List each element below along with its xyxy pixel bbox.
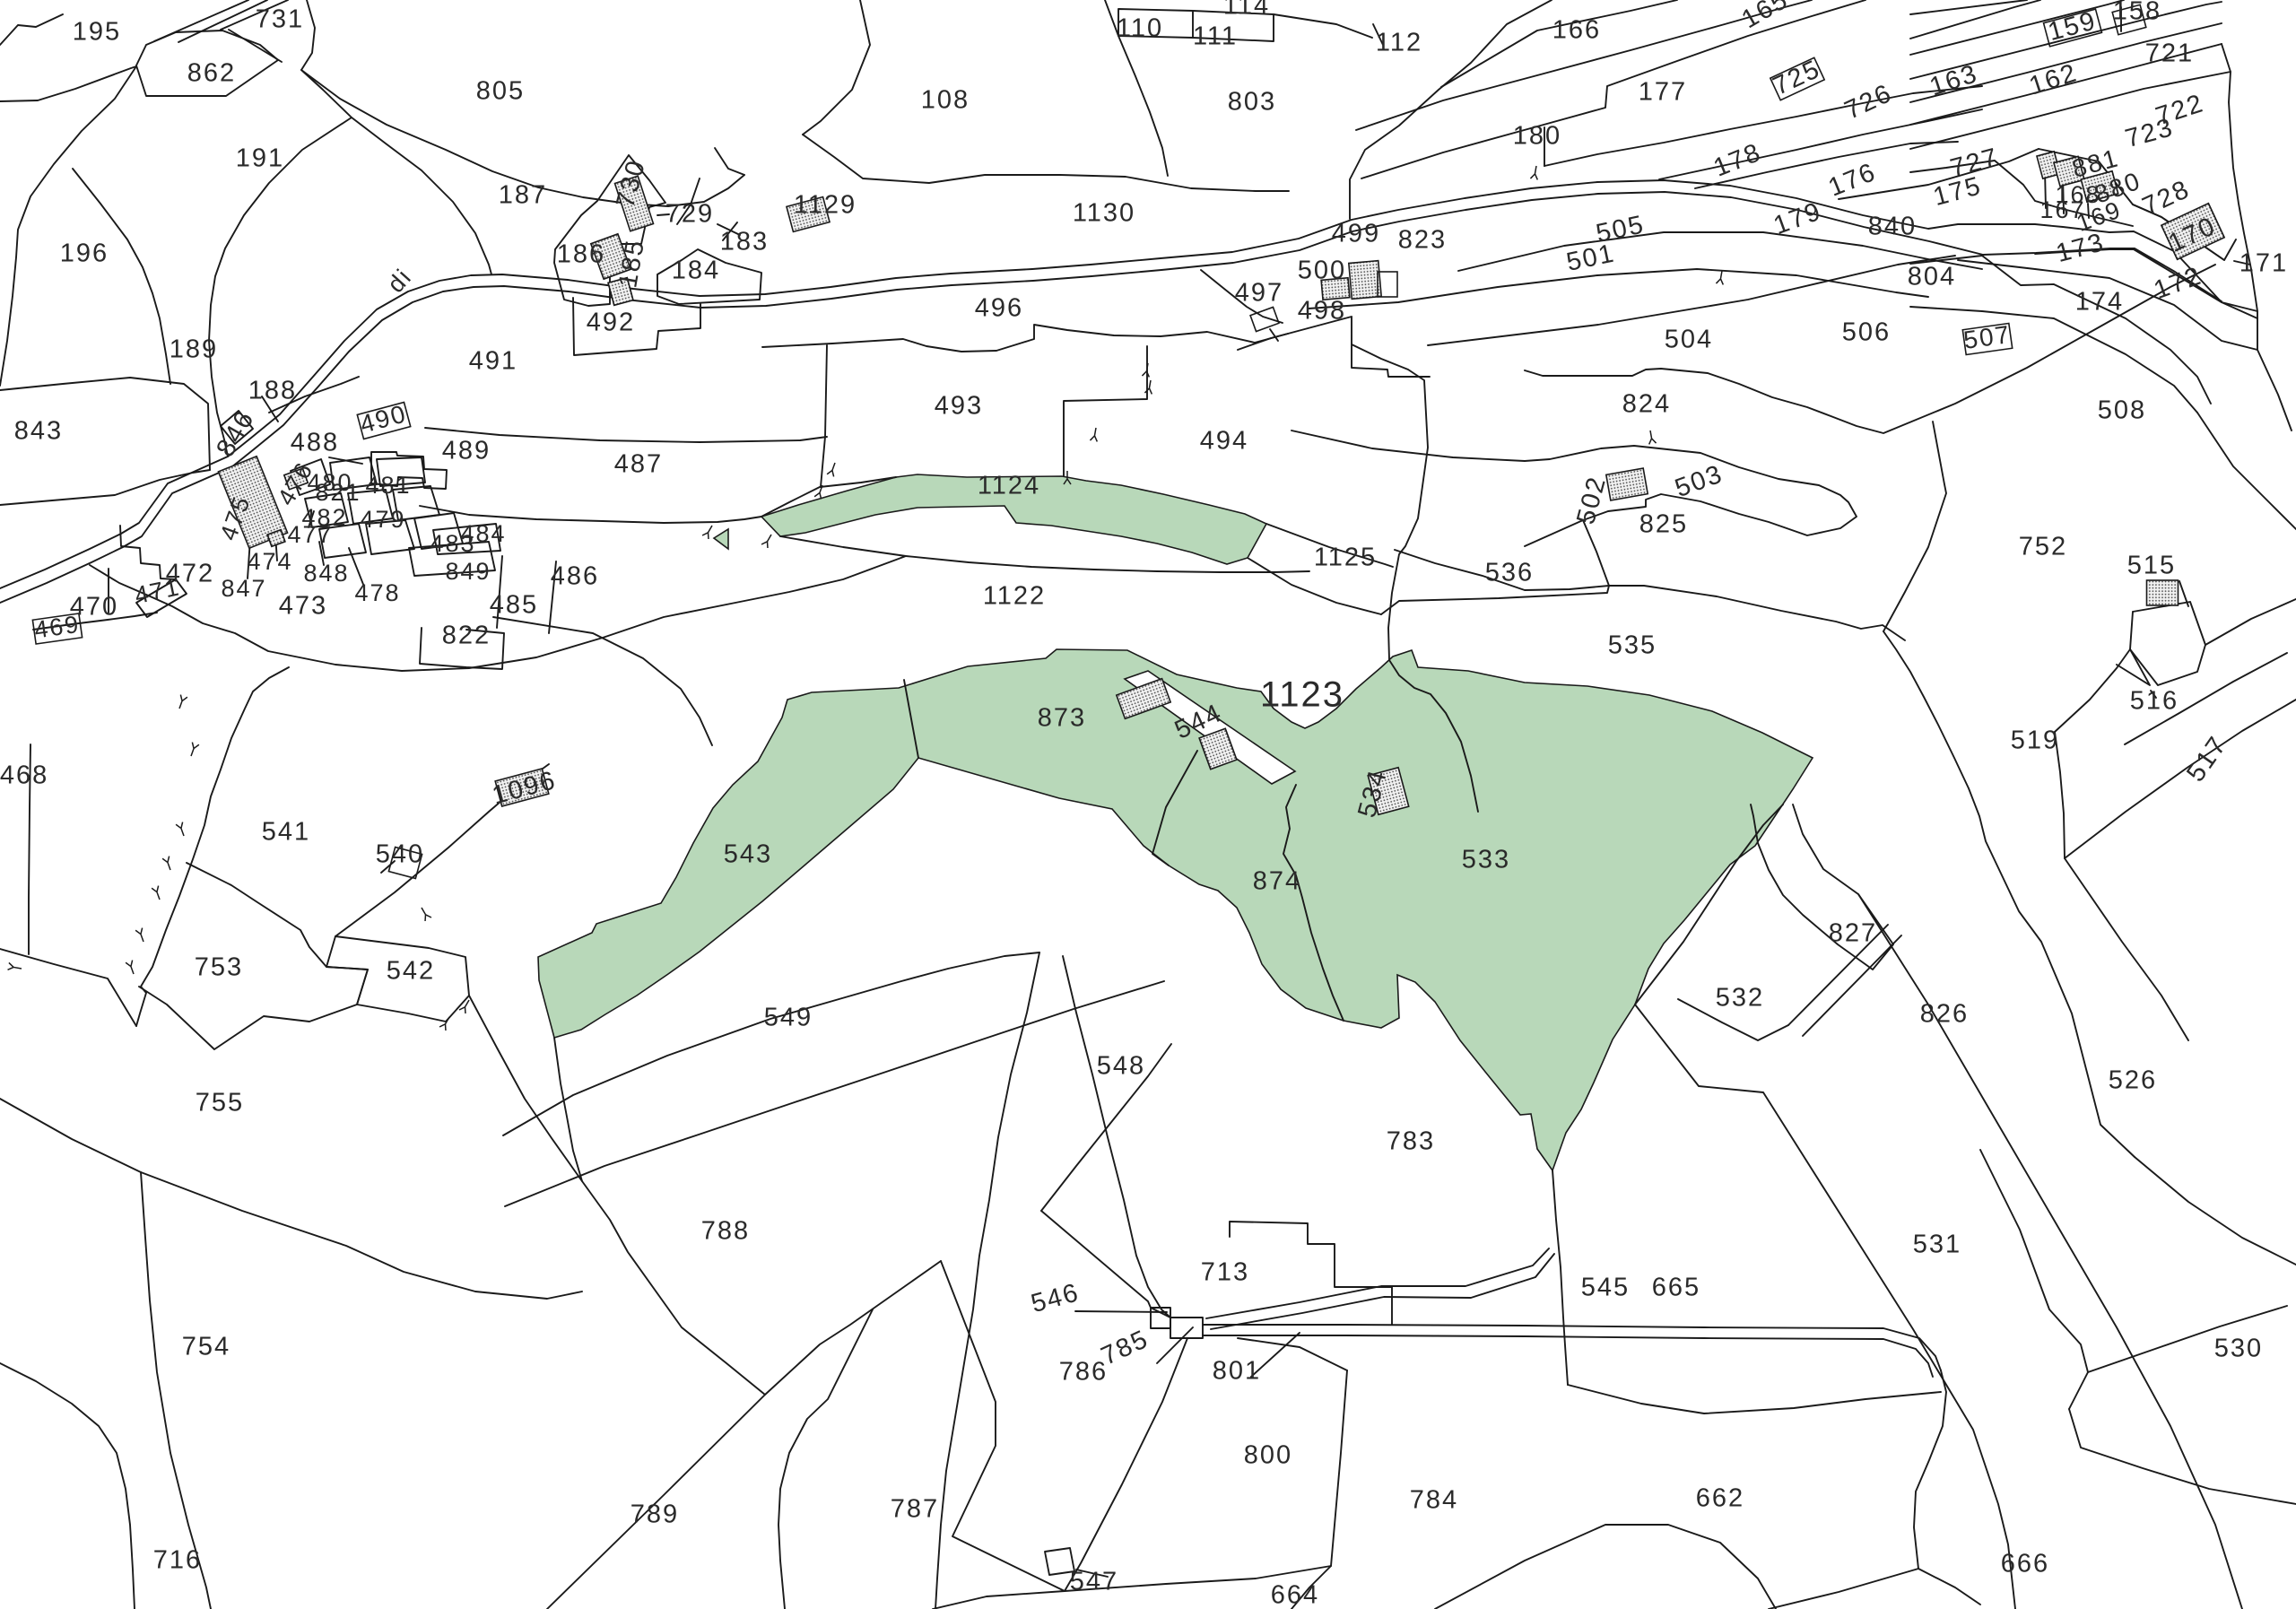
svg-text:548: 548 [1097, 1052, 1145, 1081]
svg-text:483: 483 [430, 530, 475, 557]
svg-text:479: 479 [360, 506, 405, 533]
svg-text:526: 526 [2109, 1066, 2157, 1095]
svg-text:848: 848 [303, 560, 349, 587]
svg-text:547: 547 [1070, 1568, 1118, 1596]
svg-text:488: 488 [291, 429, 339, 457]
svg-text:542: 542 [387, 957, 435, 986]
svg-text:535: 535 [1608, 631, 1657, 660]
svg-text:195: 195 [73, 18, 121, 47]
svg-text:497: 497 [1235, 279, 1283, 308]
svg-text:487: 487 [614, 450, 663, 479]
svg-text:540: 540 [376, 840, 424, 869]
svg-text:827: 827 [1829, 919, 1877, 948]
svg-text:822: 822 [442, 622, 491, 650]
svg-text:1124: 1124 [978, 472, 1040, 500]
svg-text:506: 506 [1842, 318, 1891, 347]
svg-text:713: 713 [1201, 1258, 1249, 1287]
svg-text:188: 188 [248, 377, 297, 405]
svg-text:530: 530 [2214, 1335, 2263, 1363]
svg-text:519: 519 [2011, 726, 2059, 755]
svg-text:180: 180 [1513, 122, 1561, 151]
svg-text:805: 805 [476, 77, 525, 106]
svg-text:110: 110 [1117, 14, 1163, 43]
svg-text:666: 666 [2001, 1550, 2049, 1579]
svg-text:731: 731 [256, 5, 304, 34]
svg-text:532: 532 [1716, 984, 1764, 1013]
svg-text:800: 800 [1244, 1441, 1292, 1470]
svg-text:801: 801 [1213, 1357, 1261, 1386]
svg-text:662: 662 [1696, 1484, 1744, 1513]
svg-text:531: 531 [1913, 1231, 1961, 1259]
svg-text:787: 787 [891, 1495, 939, 1524]
svg-text:826: 826 [1920, 1000, 1969, 1029]
svg-text:111: 111 [1193, 22, 1238, 51]
svg-text:516: 516 [2130, 687, 2179, 716]
svg-text:784: 784 [1410, 1486, 1458, 1515]
svg-text:873: 873 [1038, 704, 1086, 733]
svg-text:786: 786 [1059, 1358, 1108, 1387]
svg-text:1130: 1130 [1073, 199, 1135, 228]
svg-text:840: 840 [1868, 213, 1917, 241]
svg-text:664: 664 [1271, 1581, 1319, 1609]
svg-text:804: 804 [1908, 263, 1956, 291]
svg-text:486: 486 [551, 562, 599, 591]
svg-text:541: 541 [262, 818, 310, 847]
svg-text:721: 721 [2145, 39, 2194, 68]
svg-text:755: 755 [196, 1089, 244, 1118]
svg-text:843: 843 [14, 417, 63, 446]
svg-text:824: 824 [1622, 390, 1671, 419]
svg-text:494: 494 [1200, 427, 1248, 456]
svg-text:533: 533 [1462, 846, 1510, 874]
svg-text:189: 189 [170, 335, 218, 364]
svg-text:473: 473 [279, 592, 327, 621]
svg-text:665: 665 [1652, 1274, 1700, 1302]
svg-text:485: 485 [490, 591, 538, 620]
svg-text:184: 184 [672, 257, 720, 285]
svg-text:491: 491 [469, 347, 517, 376]
svg-text:500: 500 [1298, 257, 1346, 285]
svg-text:174: 174 [2075, 288, 2124, 317]
svg-text:754: 754 [182, 1333, 230, 1361]
svg-text:196: 196 [60, 239, 109, 268]
svg-text:468: 468 [0, 761, 48, 790]
svg-text:499: 499 [1332, 220, 1380, 248]
svg-text:489: 489 [442, 437, 491, 465]
svg-text:783: 783 [1387, 1127, 1435, 1156]
svg-text:478: 478 [354, 579, 400, 606]
svg-text:752: 752 [2019, 533, 2067, 561]
svg-text:171: 171 [2239, 249, 2288, 278]
svg-text:543: 543 [724, 840, 772, 869]
svg-text:1125: 1125 [1314, 544, 1377, 572]
svg-text:821: 821 [315, 479, 361, 506]
svg-text:504: 504 [1665, 326, 1713, 354]
svg-text:496: 496 [975, 294, 1023, 323]
svg-text:187: 187 [499, 181, 547, 210]
svg-text:788: 788 [701, 1217, 750, 1246]
svg-text:847: 847 [221, 575, 266, 602]
svg-text:114: 114 [1223, 0, 1270, 21]
svg-text:874: 874 [1253, 867, 1301, 896]
svg-text:481: 481 [365, 472, 411, 499]
svg-text:498: 498 [1298, 297, 1346, 326]
svg-text:1122: 1122 [983, 582, 1046, 611]
svg-text:753: 753 [195, 953, 243, 982]
svg-text:474: 474 [247, 548, 292, 575]
svg-text:493: 493 [935, 392, 983, 421]
svg-text:158: 158 [2113, 0, 2161, 26]
svg-text:789: 789 [631, 1500, 679, 1529]
svg-text:492: 492 [587, 309, 635, 337]
svg-text:1123: 1123 [1260, 675, 1344, 715]
svg-text:849: 849 [445, 558, 491, 585]
svg-text:549: 549 [764, 1004, 813, 1032]
svg-text:191: 191 [236, 144, 284, 173]
svg-text:545: 545 [1581, 1274, 1630, 1302]
svg-text:166: 166 [1552, 16, 1601, 45]
svg-text:508: 508 [2098, 396, 2146, 425]
svg-text:536: 536 [1485, 559, 1534, 587]
svg-text:177: 177 [1639, 78, 1687, 107]
svg-text:515: 515 [2127, 552, 2176, 580]
svg-text:862: 862 [187, 59, 236, 88]
svg-text:112: 112 [1376, 29, 1422, 57]
svg-text:729: 729 [665, 200, 714, 229]
svg-text:716: 716 [153, 1546, 202, 1575]
svg-text:803: 803 [1228, 88, 1276, 117]
svg-text:186: 186 [557, 240, 605, 269]
svg-text:183: 183 [720, 228, 769, 257]
svg-text:823: 823 [1398, 226, 1447, 255]
svg-text:108: 108 [921, 86, 970, 115]
svg-text:477: 477 [287, 521, 333, 548]
svg-text:825: 825 [1639, 510, 1688, 539]
svg-text:1129: 1129 [794, 191, 857, 220]
